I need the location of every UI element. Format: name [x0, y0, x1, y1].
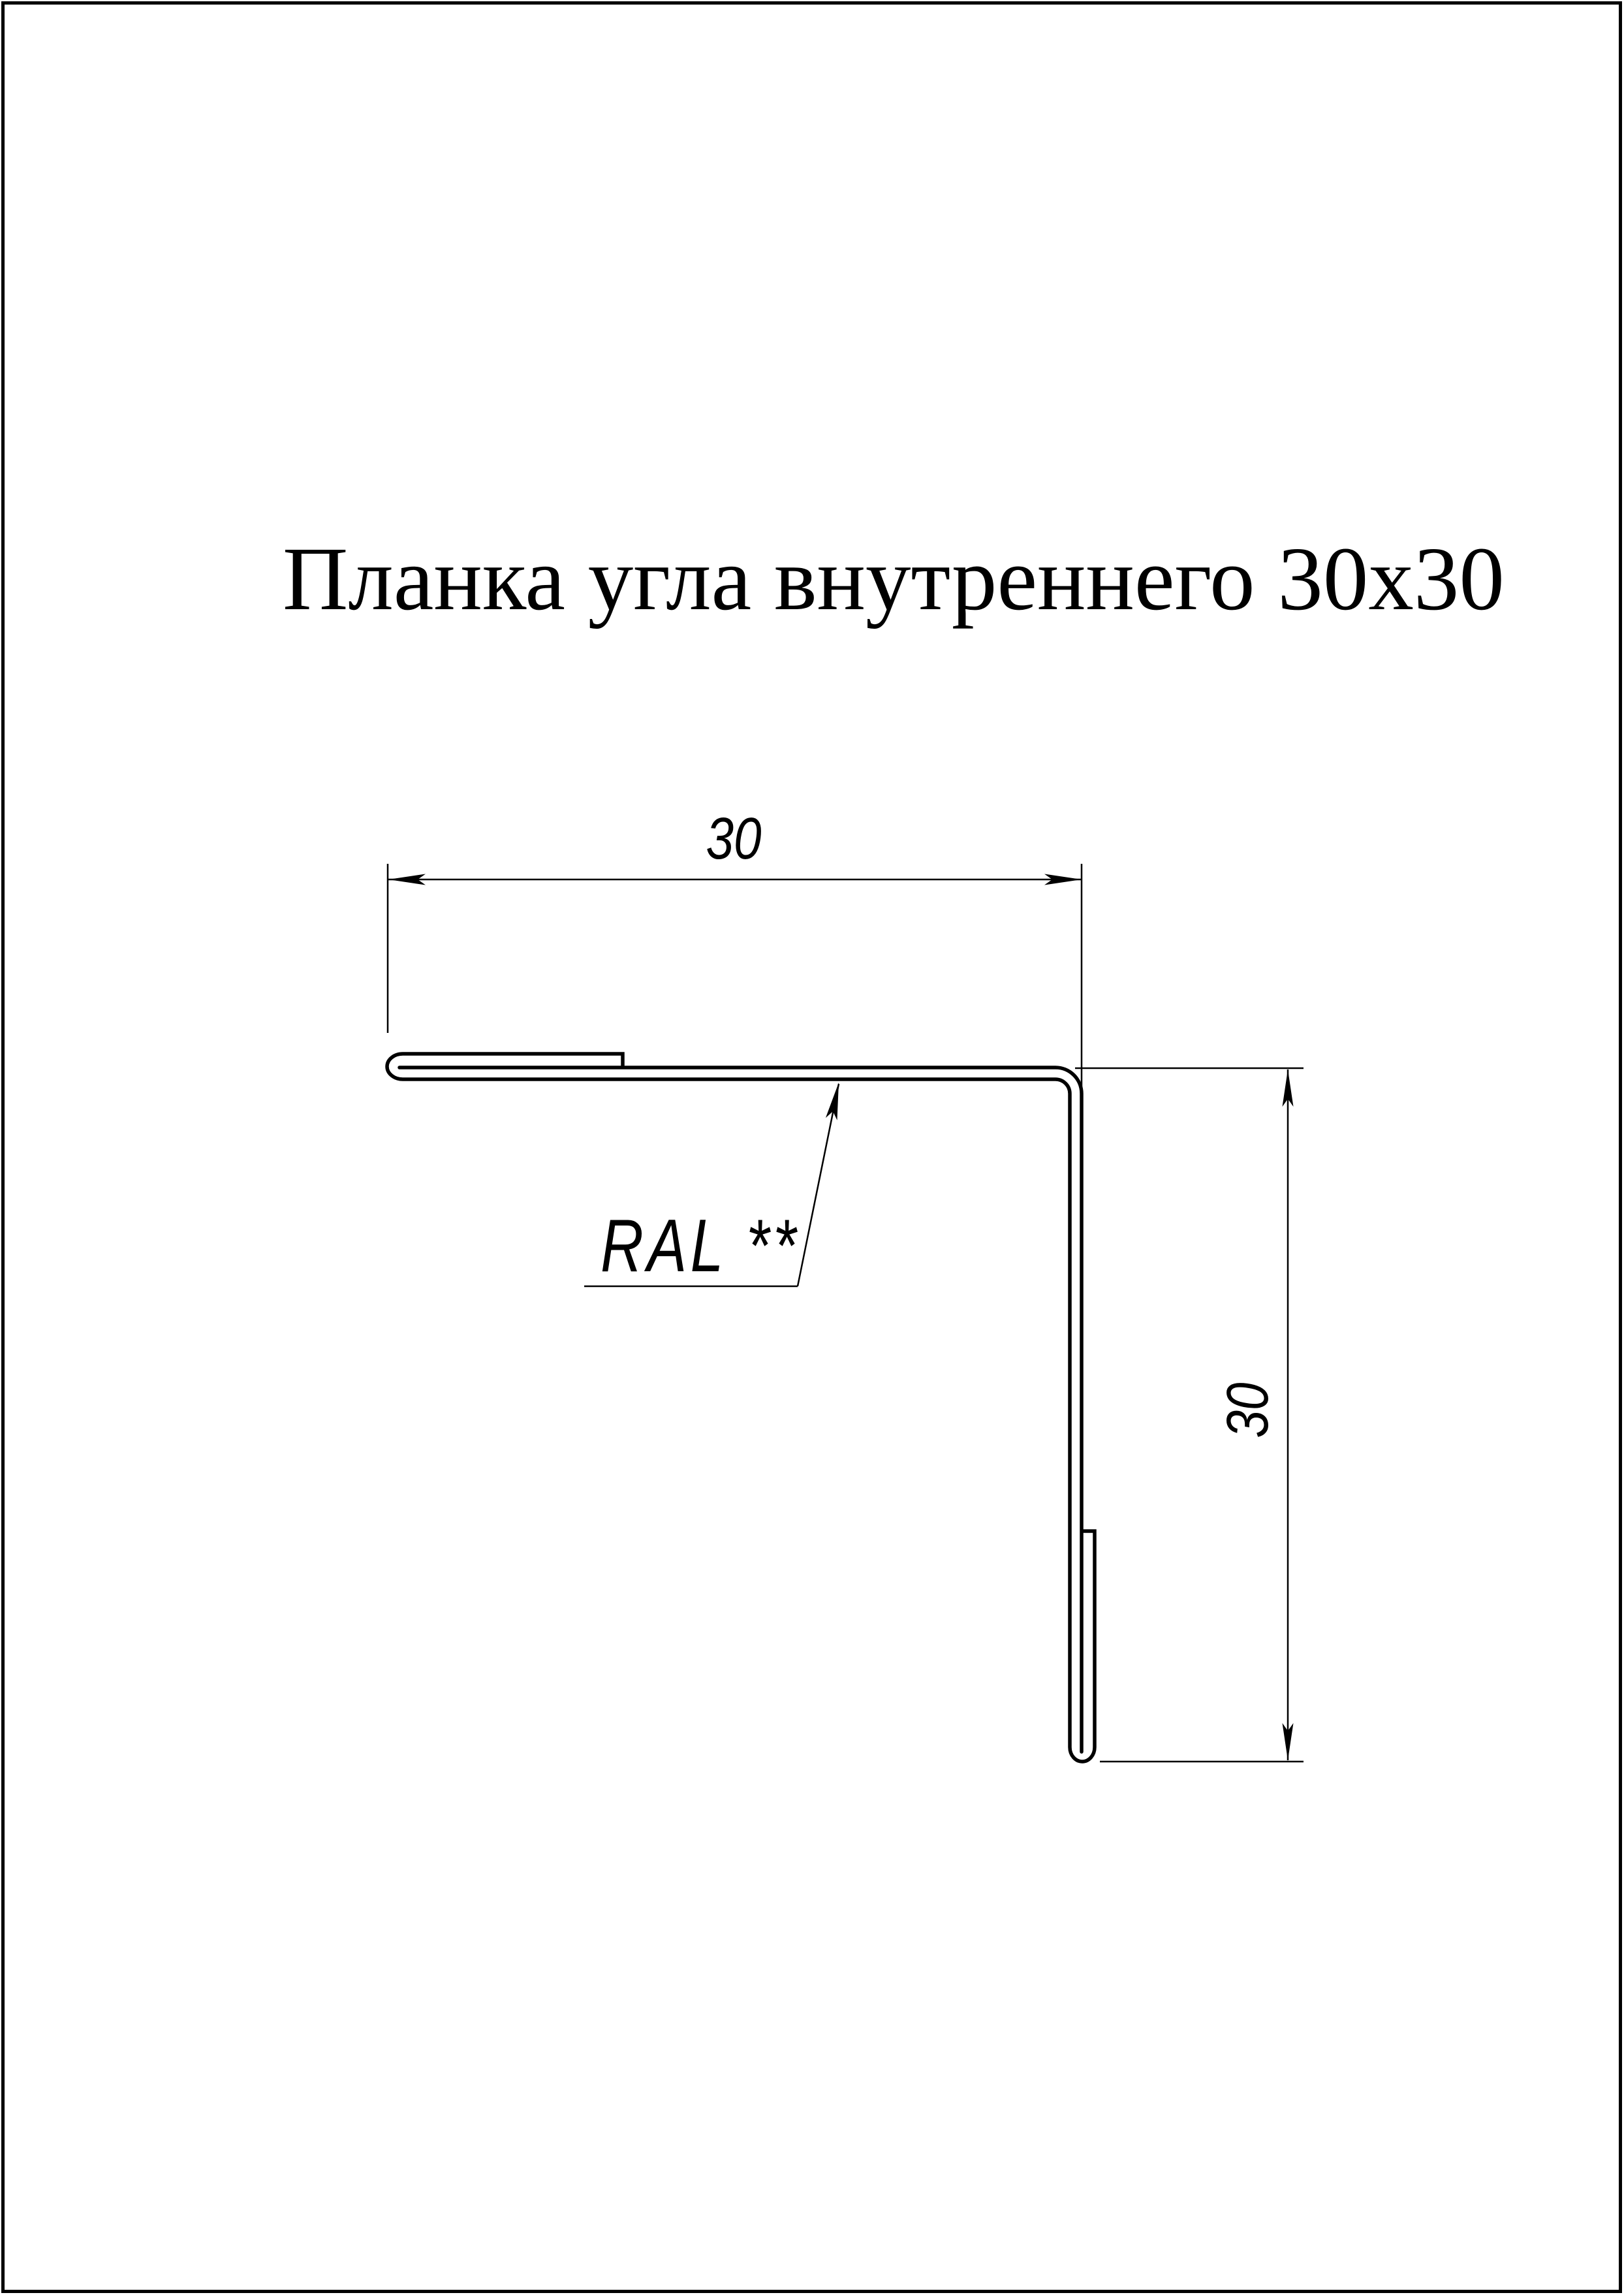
- profile-inner-outline: [387, 1054, 1095, 1762]
- dimension-top-value: 30: [700, 810, 767, 868]
- leader-diagonal: [798, 1084, 839, 1286]
- arrowheads: [388, 874, 1294, 1761]
- dimension-right-value: 30: [1219, 1377, 1277, 1444]
- dimension-lines: [388, 864, 1304, 1762]
- profile-outer-outline: [399, 1068, 1082, 1752]
- profile-contour: [387, 1054, 1095, 1762]
- ral-color-label: RAL **: [601, 1209, 800, 1284]
- drawing-sheet: { "title": "Планка угла внутреннего 30x3…: [0, 0, 1624, 2295]
- profile-drawing: [0, 0, 1624, 2295]
